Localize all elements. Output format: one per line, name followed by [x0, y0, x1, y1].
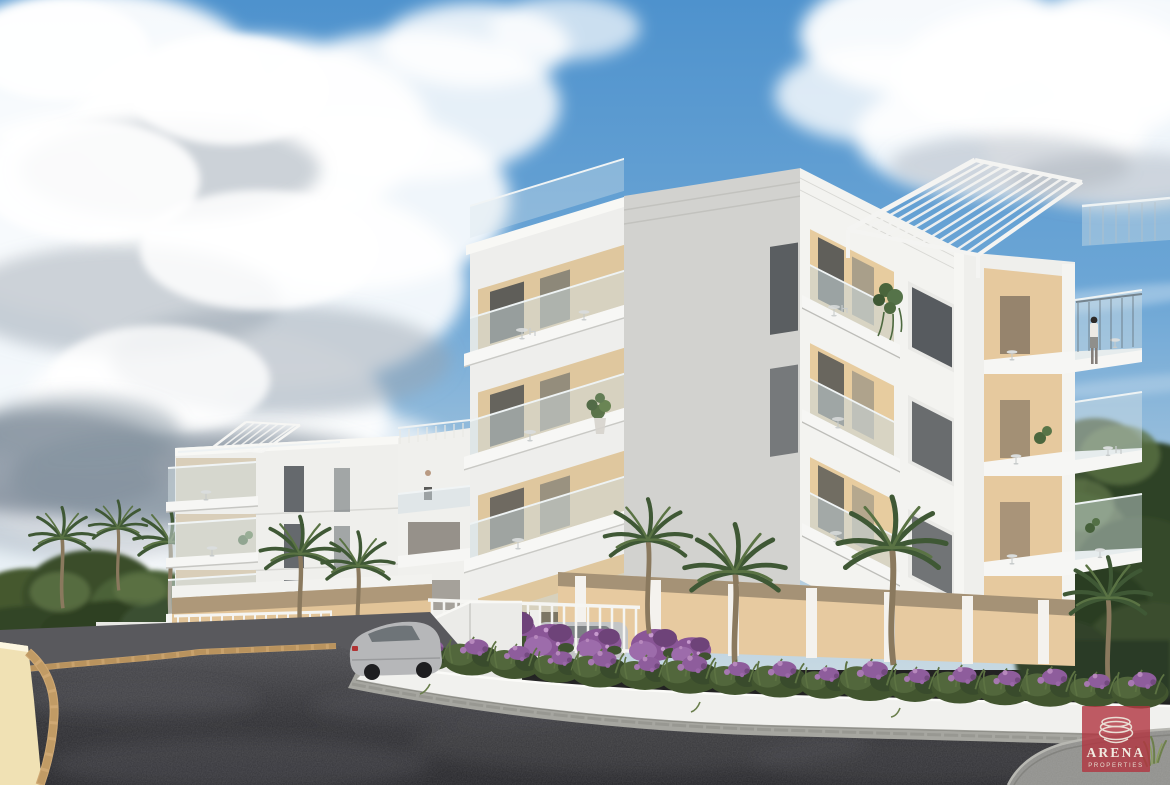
arena-tagline-text: PROPERTIES [1088, 763, 1144, 769]
arena-brand-text: ARENA [1086, 745, 1145, 760]
roof-railing-right [1082, 198, 1170, 246]
arena-logo-watermark: ARENA PROPERTIES [1082, 706, 1150, 772]
architectural-render-image: ARENA PROPERTIES [0, 0, 1170, 785]
tower-right-terraces [964, 252, 1142, 612]
